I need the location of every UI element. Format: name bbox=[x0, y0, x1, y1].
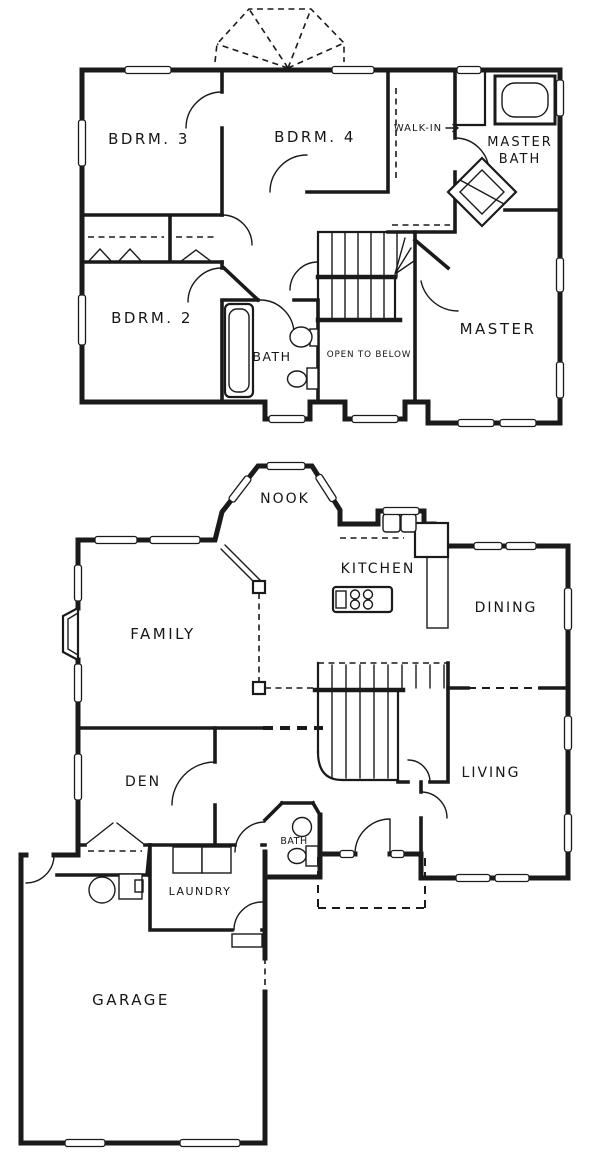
bay-roof-outline bbox=[215, 9, 344, 68]
step-icon bbox=[232, 934, 262, 947]
room-label-master-bath-line2: BATH bbox=[499, 152, 542, 167]
room-label-bdrm2: BDRM. 2 bbox=[111, 309, 193, 327]
hall-bathtub-icon bbox=[225, 304, 253, 397]
shower-icon bbox=[448, 158, 516, 226]
room-label-family: FAMILY bbox=[130, 625, 195, 643]
counter-icon bbox=[427, 557, 448, 628]
room-label-kitchen: KITCHEN bbox=[341, 561, 416, 577]
windows-upper bbox=[79, 67, 564, 427]
stairs-lower bbox=[315, 663, 448, 782]
floorplan-canvas: BDRM. 3 BDRM. 4 WALK-IN MASTER BATH BDRM… bbox=[0, 0, 600, 1160]
sink-icon-upper bbox=[290, 327, 318, 347]
fireplace-icon bbox=[63, 608, 78, 660]
room-label-dining: DINING bbox=[475, 600, 538, 616]
room-label-bath-lower: BATH bbox=[280, 836, 307, 847]
room-label-walk-in: WALK-IN bbox=[394, 123, 442, 134]
label-open-to-below: OPEN TO BELOW bbox=[327, 350, 411, 360]
room-label-bdrm4: BDRM. 4 bbox=[274, 128, 356, 146]
sink-icon-lower bbox=[293, 818, 312, 837]
toilet-tank-icon bbox=[306, 846, 318, 866]
garage-fixtures bbox=[89, 874, 143, 903]
toilet-icon-lower bbox=[288, 849, 306, 864]
upper-floor-plan: BDRM. 3 BDRM. 4 WALK-IN MASTER BATH BDRM… bbox=[79, 9, 564, 427]
den-double-doors bbox=[85, 823, 145, 851]
master-bathtub-icon bbox=[495, 76, 555, 124]
interior-walls-upper bbox=[82, 70, 560, 402]
porch-outline bbox=[318, 857, 425, 908]
room-label-bath-upper: BATH bbox=[252, 349, 291, 364]
kitchen-sink-icon bbox=[383, 514, 416, 532]
island-cooktop-icon bbox=[333, 587, 392, 612]
column-icon bbox=[253, 581, 265, 593]
washer-icon bbox=[173, 847, 202, 873]
dryer-icon bbox=[202, 847, 231, 873]
toilet-icon-upper bbox=[288, 368, 319, 389]
room-label-bdrm3: BDRM. 3 bbox=[108, 130, 190, 148]
lower-floor-plan: NOOK KITCHEN DINING FAMILY DEN LIVING BA… bbox=[21, 463, 572, 1147]
utility-box-icon bbox=[119, 874, 142, 899]
refrigerator-icon bbox=[415, 523, 448, 557]
floorplan-document: BDRM. 3 BDRM. 4 WALK-IN MASTER BATH BDRM… bbox=[0, 0, 600, 1160]
windows-lower bbox=[65, 463, 572, 1147]
stairs-upper bbox=[318, 232, 415, 320]
exterior-walls-upper bbox=[82, 70, 560, 423]
column-icon bbox=[253, 682, 265, 694]
room-label-den: DEN bbox=[125, 774, 161, 790]
room-label-nook: NOOK bbox=[260, 491, 310, 507]
bifold-door-symbols bbox=[88, 249, 212, 262]
room-label-master: MASTER bbox=[460, 320, 537, 338]
room-label-garage: GARAGE bbox=[92, 991, 170, 1009]
room-label-living: LIVING bbox=[462, 765, 521, 781]
laundry-tub-icon bbox=[89, 877, 115, 903]
room-label-master-bath-line1: MASTER bbox=[487, 135, 553, 150]
room-label-laundry: LAUNDRY bbox=[169, 885, 232, 898]
